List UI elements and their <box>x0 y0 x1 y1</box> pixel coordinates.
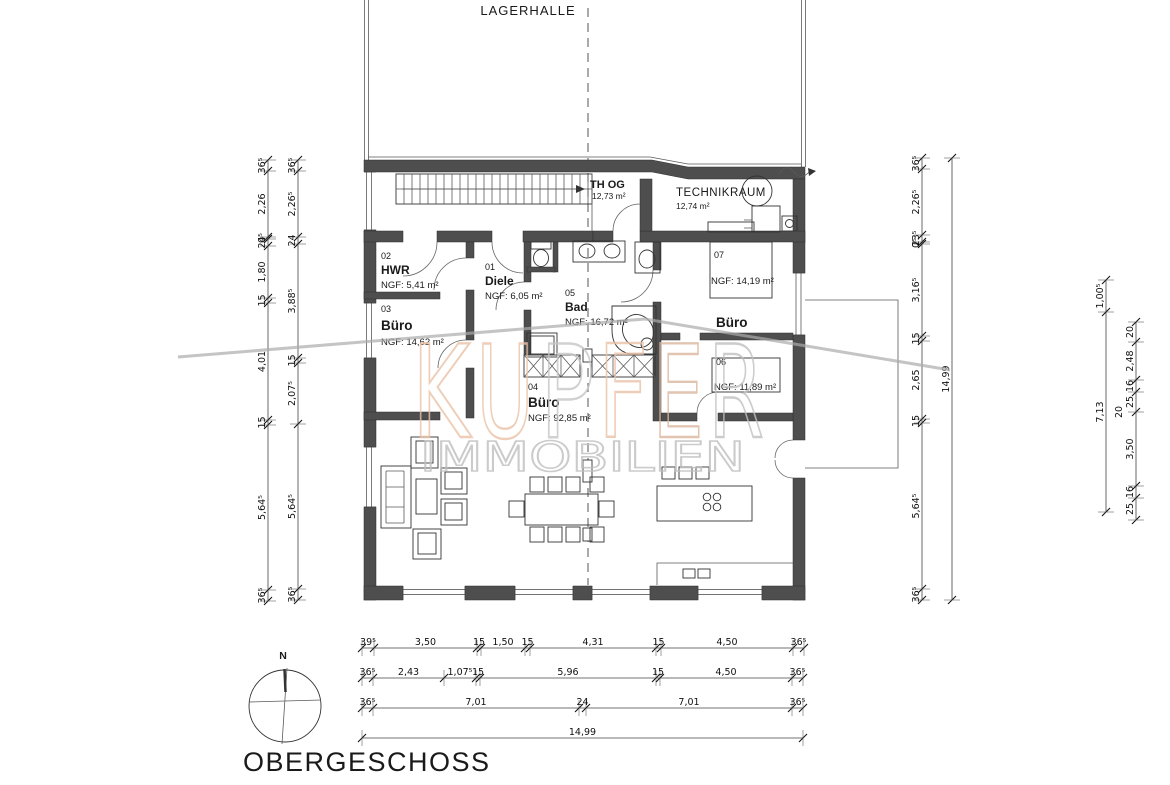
dim-label: 1,07⁵ <box>448 667 473 678</box>
dim-label: 36⁵ <box>911 586 922 602</box>
dim-label: 15 <box>652 667 664 678</box>
stair-area: 12,73 m² <box>592 191 626 201</box>
dining-table <box>525 494 598 525</box>
dim-label: 7,13 <box>1095 401 1106 422</box>
dim-label: 24 <box>257 236 268 248</box>
lagerhalle-label: LAGERHALLE <box>480 3 575 18</box>
dim-label: 3,50 <box>1125 438 1136 459</box>
dim-label: 15 <box>287 354 298 366</box>
dim-chain-bottom-1: 39⁵3,50151,50154,31154,5036⁵ <box>358 637 808 656</box>
sink-right <box>604 244 620 258</box>
dim-label: 1,80 <box>257 261 268 282</box>
buero03-name: Büro <box>381 318 413 333</box>
dim-label: 5,64⁵ <box>911 493 922 518</box>
stair-direction-arrow <box>576 185 585 193</box>
section-line <box>583 8 592 585</box>
dim-label: 36⁵ <box>287 586 298 602</box>
dim-label: 36⁵ <box>790 667 806 678</box>
compass: N <box>249 650 321 744</box>
dim-label-standalone-20: 20 <box>1114 406 1125 418</box>
diele-number: 01 <box>485 262 495 272</box>
armchair <box>413 529 441 559</box>
dim-label: 16 <box>1125 380 1136 392</box>
sofa <box>381 466 411 528</box>
dining-set <box>509 477 614 542</box>
dim-label: 2,26⁵ <box>287 191 298 216</box>
hwr-number: 02 <box>381 251 391 261</box>
terrace-outline <box>805 300 898 468</box>
dim-label: 39⁵ <box>360 637 376 648</box>
bad-name: Bad <box>565 300 588 314</box>
dim-label: 15 <box>473 637 485 648</box>
dim-label: 5,64⁵ <box>287 494 298 519</box>
toilet <box>534 250 549 267</box>
dim-label: 25 <box>1125 503 1136 515</box>
dim-label: 15 <box>257 294 268 306</box>
diele-area: NGF: 6,05 m² <box>485 291 543 302</box>
dim-chain-left-inner: 36⁵2,26⁵243,88⁵152,07⁵5,64⁵36⁵ <box>287 156 306 604</box>
dim-chain-far-right-b: 202,4816253,501625 <box>1125 318 1144 524</box>
dim-label: 5,96 <box>557 667 578 678</box>
page-title: OBERGESCHOSS <box>243 747 491 777</box>
dim-chain-bottom-2: 36⁵2,431,07⁵155,96154,5036⁵ <box>358 667 807 686</box>
vanity <box>573 241 625 262</box>
dim-label: 7,01 <box>678 697 699 708</box>
dim-label: 3,50 <box>415 637 436 648</box>
bad-number: 05 <box>565 288 575 298</box>
dim-label: 4,31 <box>582 637 603 648</box>
north-label: N <box>279 650 287 662</box>
dim-label: 24 <box>576 697 588 708</box>
staircase <box>396 174 592 231</box>
dim-label: 1,50 <box>492 637 513 648</box>
floorplan-page: LAGERHALLE <box>0 0 1170 785</box>
dim-label: 2,26 <box>257 193 268 214</box>
coffee-table <box>416 479 437 514</box>
lagerhalle-outline: LAGERHALLE <box>365 0 806 167</box>
hwr-area: NGF: 5,41 m² <box>381 280 439 291</box>
dim-label: 36⁵ <box>257 587 268 603</box>
technik-area: 12,74 m² <box>676 201 710 211</box>
dim-label: 15 <box>911 415 922 427</box>
buero07-number: 07 <box>714 250 724 260</box>
dim-label: 2,07⁵ <box>287 381 298 406</box>
dim-label: 4,01 <box>257 351 268 372</box>
dim-label: 15 <box>652 637 664 648</box>
dim-label: 0⁵ <box>911 238 922 248</box>
dim-chain-right-total: 14,99 <box>941 154 960 604</box>
technik-label: TECHNIKRAUM <box>676 187 766 199</box>
hwr-name: HWR <box>381 263 410 277</box>
dim-label: 36⁵ <box>791 637 807 648</box>
dim-label: 4,50 <box>715 667 736 678</box>
dim-label: 14,99 <box>569 727 596 738</box>
kitchen-sink <box>683 569 695 578</box>
dim-label: 15 <box>257 416 268 428</box>
kitchen-island <box>657 486 752 521</box>
buero07-area: NGF: 14,19 m² <box>711 276 774 287</box>
dim-label: 36⁵ <box>360 667 376 678</box>
dim-label: 2,65 <box>911 369 922 390</box>
stair-label: TH OG <box>590 179 625 191</box>
dim-chain-right-inner: 36⁵2,26⁵23⁵0⁵3,16⁵152,65155,64⁵36⁵ <box>911 154 930 604</box>
kitchen <box>657 467 793 585</box>
dim-chain-bottom-3: 36⁵7,01247,0136⁵ <box>358 697 807 716</box>
dim-label: 2,26⁵ <box>911 189 922 214</box>
dim-label: 20 <box>1125 326 1136 338</box>
dim-label: 2,43 <box>398 667 419 678</box>
dim-label: 36⁵ <box>911 155 922 171</box>
dim-label: 24 <box>287 234 298 246</box>
dim-label: 7,01 <box>465 697 486 708</box>
buero03-number: 03 <box>381 304 391 314</box>
dim-label: 36⁵ <box>360 697 376 708</box>
dim-label: 15 <box>521 637 533 648</box>
dim-label: 36⁵ <box>257 157 268 173</box>
kitchen-counter <box>657 563 793 585</box>
dim-label: 36⁵ <box>287 157 298 173</box>
dim-label: 4,50 <box>716 637 737 648</box>
dim-chain-bottom-total: 14,99 <box>358 727 807 746</box>
dim-label: 1,00⁵ <box>1095 283 1106 308</box>
dim-label: 25 <box>1125 396 1136 408</box>
dim-label: 3,16⁵ <box>911 277 922 302</box>
technikraum-equipment <box>708 176 797 232</box>
dim-label: 2,48 <box>1125 350 1136 371</box>
dim-label: 36⁵ <box>790 697 806 708</box>
dim-label: 16 <box>1125 486 1136 498</box>
dim-chain-left-outer: 36⁵2,260⁵241,80154,01155,64⁵36⁵ <box>257 156 276 605</box>
sink-left <box>579 244 595 258</box>
dim-chain-far-right-a: 1,00⁵7,13 <box>1095 276 1114 516</box>
floorplan-drawing: LAGERHALLE <box>0 0 1170 785</box>
dim-label: 5,64⁵ <box>257 495 268 520</box>
watermark-subtitle: IMMOBILIEN <box>420 433 745 481</box>
dim-label: 15 <box>911 332 922 344</box>
dim-label: 3,88⁵ <box>287 288 298 313</box>
diele-name: Diele <box>485 274 514 288</box>
dim-label: 15 <box>472 667 484 678</box>
